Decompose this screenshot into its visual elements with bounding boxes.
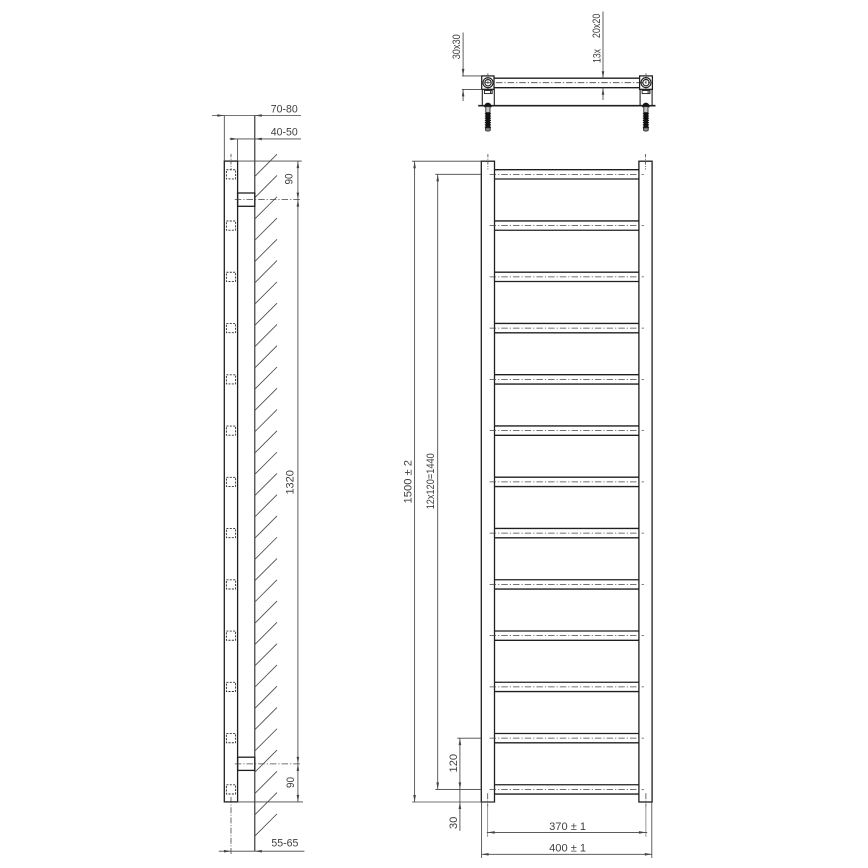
svg-text:1320: 1320	[284, 470, 296, 495]
svg-text:20x20: 20x20	[591, 14, 603, 39]
svg-text:55-65: 55-65	[271, 837, 298, 849]
svg-text:90: 90	[284, 174, 296, 185]
svg-text:400 ± 1: 400 ± 1	[549, 842, 586, 854]
svg-text:90: 90	[285, 777, 297, 788]
svg-text:30x30: 30x30	[451, 34, 463, 59]
svg-text:70-80: 70-80	[271, 103, 298, 115]
svg-text:12x120=1440: 12x120=1440	[425, 453, 437, 509]
svg-text:120: 120	[448, 754, 460, 773]
svg-text:40-50: 40-50	[271, 127, 298, 139]
svg-text:370 ± 1: 370 ± 1	[549, 821, 586, 833]
svg-text:13x: 13x	[591, 49, 603, 63]
svg-text:1500 ± 2: 1500 ± 2	[403, 460, 415, 504]
svg-text:30: 30	[448, 817, 460, 830]
